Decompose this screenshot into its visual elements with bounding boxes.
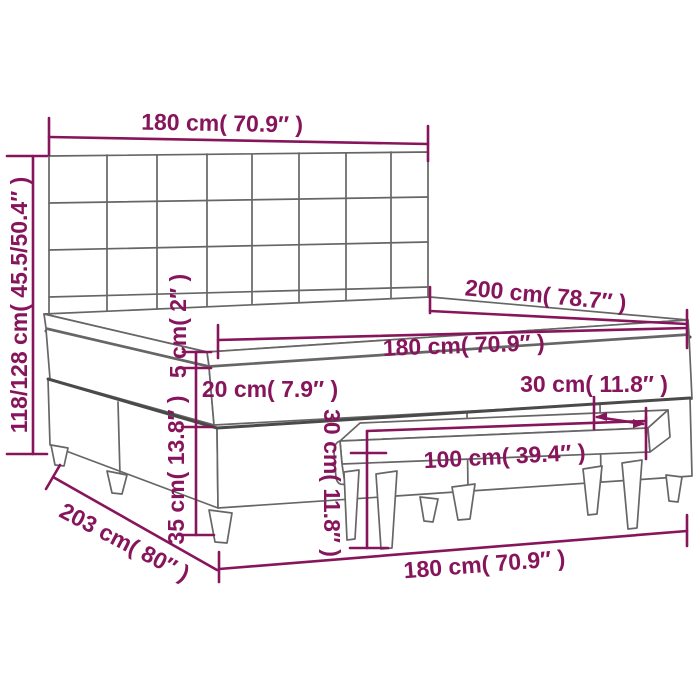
dim-total-height-label: 118/128 cm( 45.5/50.4″ ) — [6, 177, 32, 434]
bed-leg — [666, 475, 682, 502]
dim-bench-height-label: 30 cm( 11.8″ ) — [319, 409, 345, 557]
bed-leg — [107, 471, 127, 494]
dim-topper-thickness-label: 5 cm( 2″ ) — [165, 274, 191, 378]
dim-total-height: 118/128 cm( 45.5/50.4″ ) — [6, 156, 47, 454]
bench-leg — [622, 460, 642, 529]
dim-base-height-label: 35 cm( 13.8″ ) — [163, 395, 189, 544]
bench-leg — [452, 484, 475, 520]
dim-front-width-label: 180 cm( 70.9″ ) — [403, 545, 566, 584]
dim-bench-depth-label: 30 cm( 11.8″ ) — [520, 371, 668, 397]
dim-headboard-width-label: 180 cm( 70.9″ ) — [141, 109, 303, 138]
bed-leg — [420, 497, 438, 522]
bed-dimension-diagram: 180 cm( 70.9″ ) 118/128 cm( 45.5/50.4″ )… — [0, 0, 700, 700]
bed-leg — [51, 445, 68, 466]
bench-leg — [583, 466, 602, 515]
bench-leg — [376, 471, 397, 549]
dim-mattress-thickness-label: 20 cm( 7.9″ ) — [202, 376, 338, 402]
bed-leg — [209, 510, 232, 543]
dim-front-width: 180 cm( 70.9″ ) — [219, 515, 687, 583]
diagram-canvas: 180 cm( 70.9″ ) 118/128 cm( 45.5/50.4″ )… — [0, 0, 700, 700]
dim-mattress-thickness: 20 cm( 7.9″ ) — [202, 376, 338, 402]
bench-leg — [344, 470, 359, 540]
